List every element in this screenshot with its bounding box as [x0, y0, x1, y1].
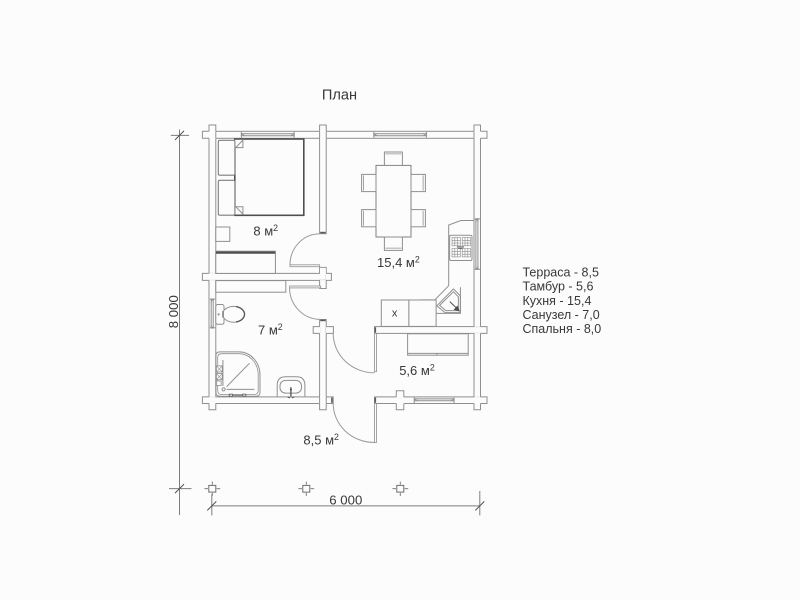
- svg-text:Терраса - 8,5: Терраса - 8,5: [523, 265, 599, 279]
- svg-text:Кухня - 15,4: Кухня - 15,4: [523, 294, 592, 308]
- svg-text:Санузел - 7,0: Санузел - 7,0: [523, 308, 600, 322]
- svg-text:6 000: 6 000: [329, 493, 362, 508]
- svg-text:8,5 м2: 8,5 м2: [303, 432, 339, 447]
- svg-text:Спальня - 8,0: Спальня - 8,0: [523, 322, 602, 336]
- svg-text:План: План: [322, 88, 357, 104]
- svg-text:x: x: [392, 308, 398, 320]
- svg-text:8 000: 8 000: [166, 295, 181, 328]
- svg-text:15,4 м2: 15,4 м2: [377, 254, 420, 269]
- svg-text:5,6 м2: 5,6 м2: [399, 362, 435, 377]
- svg-text:Тамбур - 5,6: Тамбур - 5,6: [523, 280, 594, 294]
